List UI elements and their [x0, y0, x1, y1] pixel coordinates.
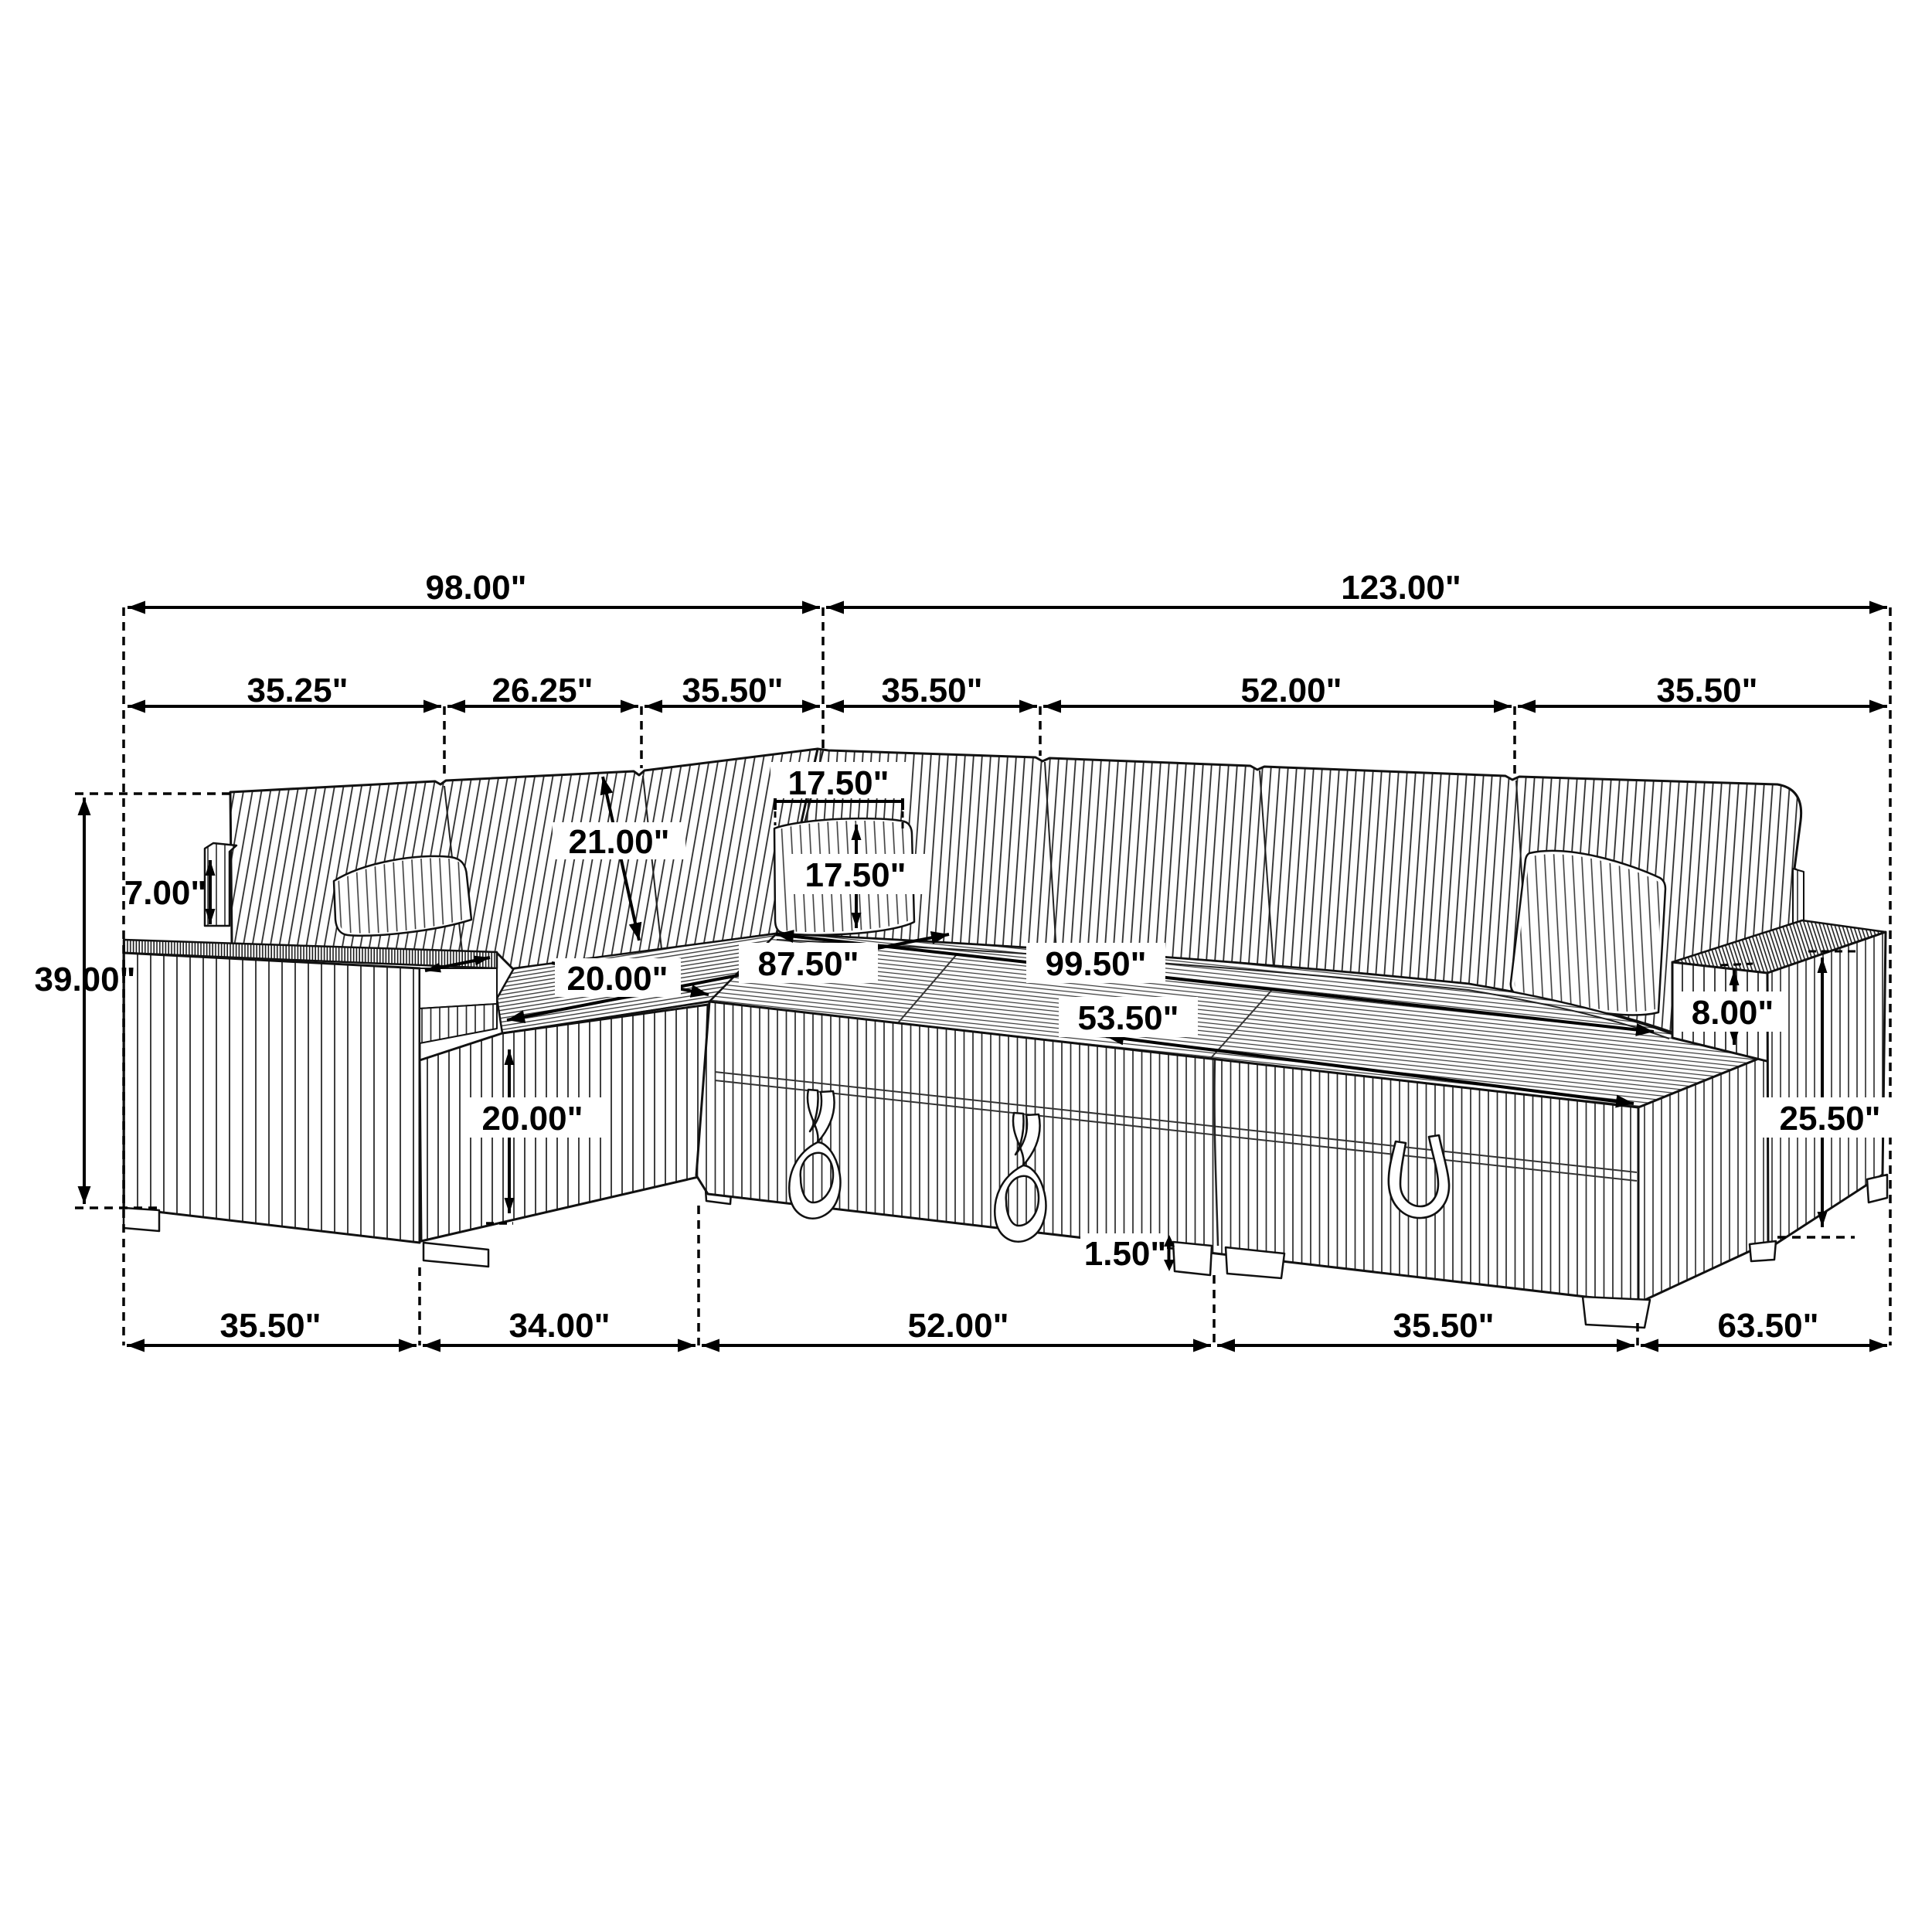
svg-text:87.50": 87.50": [758, 945, 859, 983]
svg-text:25.50": 25.50": [1780, 1100, 1881, 1138]
svg-text:26.25": 26.25": [492, 672, 594, 709]
svg-text:35.50": 35.50": [1657, 672, 1758, 709]
svg-text:17.50": 17.50": [788, 764, 889, 802]
svg-text:39.00": 39.00": [35, 961, 136, 998]
svg-text:20.00": 20.00": [482, 1100, 583, 1138]
svg-text:17.50": 17.50": [805, 856, 906, 894]
svg-text:53.50": 53.50": [1078, 999, 1179, 1037]
svg-text:35.50": 35.50": [682, 672, 784, 709]
svg-text:52.00": 52.00": [1241, 672, 1342, 709]
svg-text:35.25": 35.25": [247, 672, 349, 709]
svg-text:98.00": 98.00": [426, 569, 527, 607]
svg-text:52.00": 52.00": [908, 1307, 1009, 1345]
svg-text:7.00": 7.00": [124, 874, 207, 912]
svg-text:34.00": 34.00": [509, 1307, 611, 1345]
svg-text:35.50": 35.50": [220, 1307, 321, 1345]
svg-text:21.00": 21.00": [569, 823, 670, 861]
svg-text:35.50": 35.50": [1393, 1307, 1495, 1345]
svg-text:123.00": 123.00": [1341, 569, 1461, 607]
svg-text:35.50": 35.50": [882, 672, 983, 709]
svg-text:99.50": 99.50": [1046, 945, 1147, 983]
svg-text:20.00": 20.00": [567, 960, 668, 998]
svg-text:8.00": 8.00": [1692, 994, 1774, 1032]
svg-text:1.50": 1.50": [1084, 1235, 1167, 1273]
svg-text:63.50": 63.50": [1718, 1307, 1819, 1345]
